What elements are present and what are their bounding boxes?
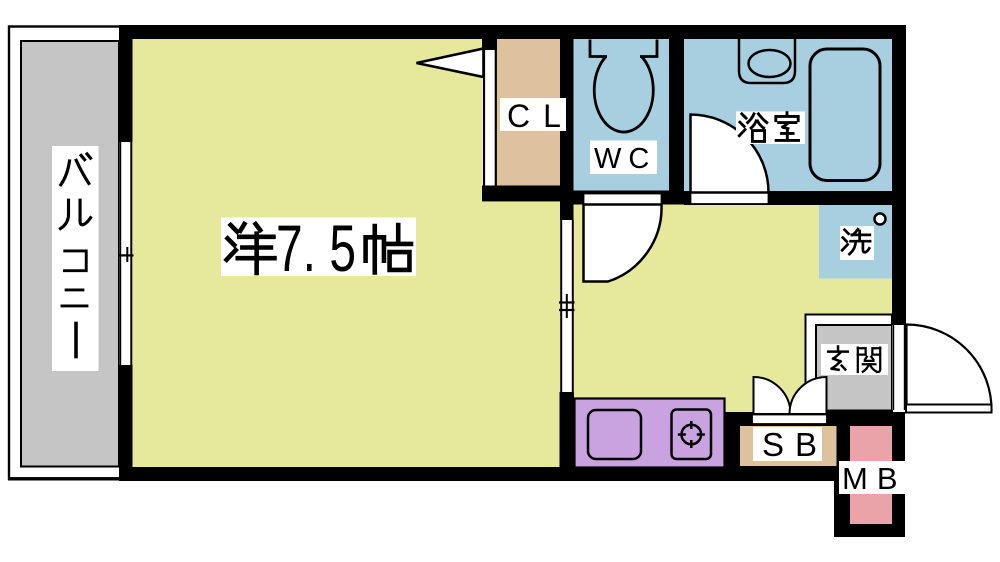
svg-text:CL: CL [507, 98, 574, 134]
svg-text:WC: WC [594, 143, 656, 175]
svg-text:7. 5: 7. 5 [276, 211, 356, 285]
svg-text:MB: MB [842, 461, 907, 496]
svg-text:SB: SB [762, 426, 828, 463]
